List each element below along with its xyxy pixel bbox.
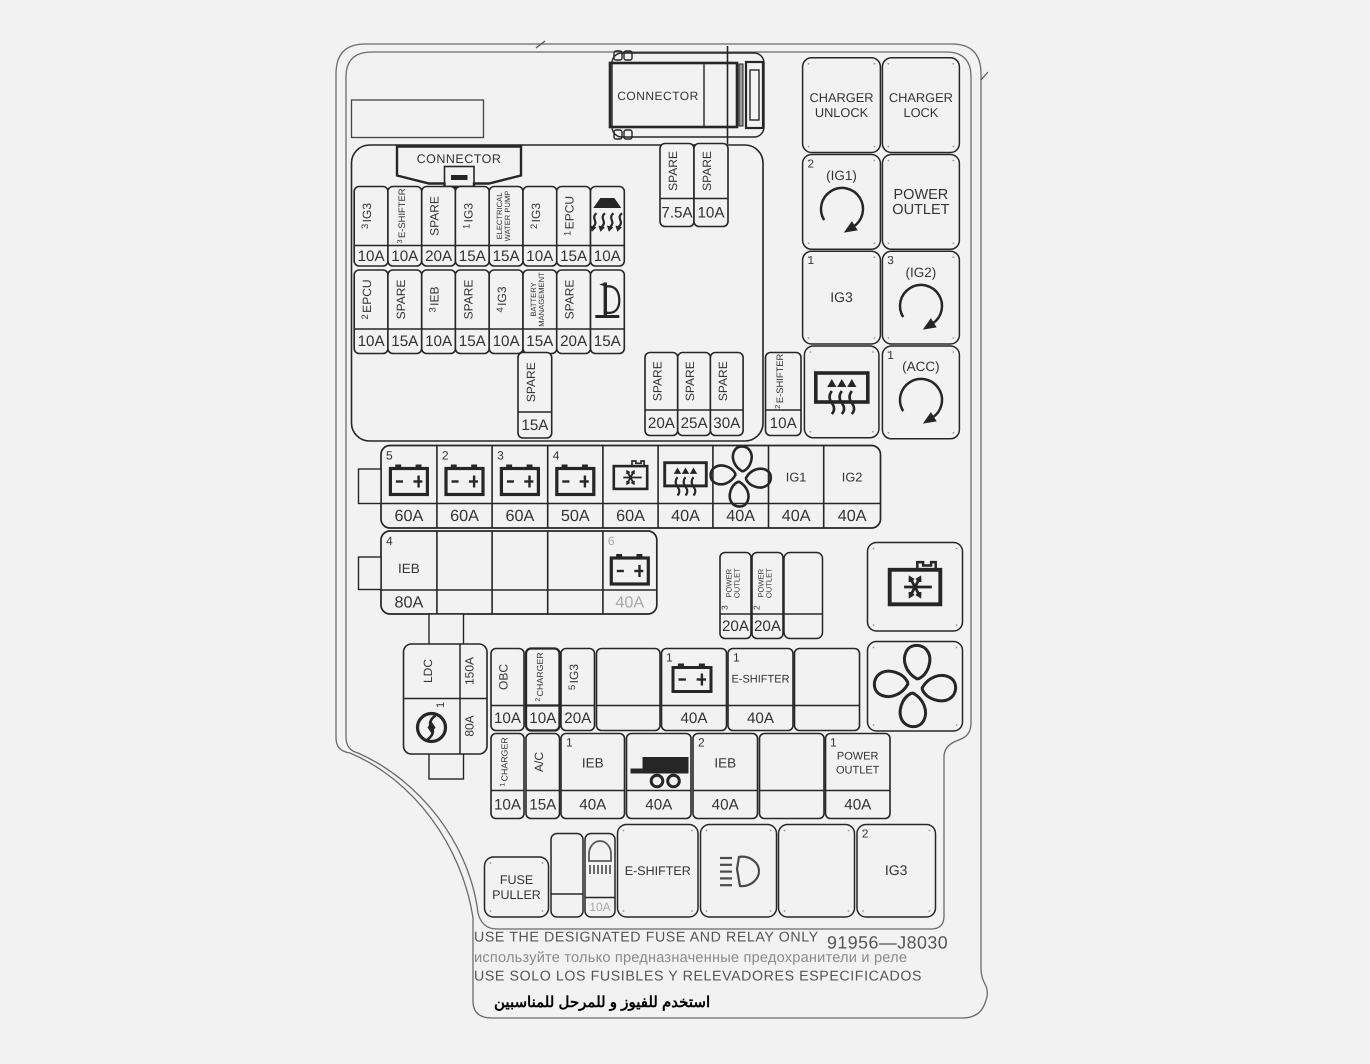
svg-text:80A: 80A [463,715,477,736]
svg-text:(ACC): (ACC) [902,359,940,374]
svg-text:15A: 15A [560,248,588,265]
svg-text:20A: 20A [754,618,782,635]
svg-text:40A: 40A [712,797,740,814]
svg-text:IG2: IG2 [842,470,863,485]
svg-text:40A: 40A [671,507,700,525]
svg-text:SPARE: SPARE [650,361,664,401]
svg-text:USE SOLO LOS FUSIBLES Y RELEVA: USE SOLO LOS FUSIBLES Y RELEVADORES ESPE… [474,969,922,985]
svg-text:IEB: IEB [398,561,420,576]
svg-text:SPARE: SPARE [428,196,442,236]
svg-text:15A: 15A [521,417,549,434]
svg-text:2CHARGER: 2CHARGER [535,652,545,701]
svg-text:15A: 15A [526,333,554,350]
svg-text:40A: 40A [782,507,811,525]
svg-text:10A: 10A [391,248,419,265]
svg-text:10A: 10A [697,205,725,222]
svg-text:WATER PUMP: WATER PUMP [503,191,512,242]
svg-text:SPARE: SPARE [700,151,714,191]
svg-text:SPARE: SPARE [716,361,730,401]
svg-text:3: 3 [497,449,504,463]
svg-text:IEB: IEB [582,756,604,771]
svg-text:2: 2 [442,449,449,463]
svg-text:10A: 10A [358,333,386,350]
svg-text:40A: 40A [726,507,755,525]
svg-text:15A: 15A [459,333,487,350]
svg-text:SPARE: SPARE [461,280,475,320]
svg-text:2: 2 [862,829,868,841]
svg-text:10A: 10A [493,333,521,350]
svg-text:40A: 40A [615,594,644,612]
svg-text:1EPCU: 1EPCU [562,196,577,236]
svg-text:10A: 10A [425,333,453,350]
svg-text:SPARE: SPARE [394,280,408,320]
svg-text:استخدم للفيوز و للمرحل للمناسب: استخدم للفيوز و للمرحل للمناسبين [494,994,710,1011]
svg-text:30A: 30A [713,415,741,432]
svg-text:20A: 20A [722,618,750,635]
svg-text:1CHARGER: 1CHARGER [500,737,510,786]
svg-text:используйте только предназначе: используйте только предназначенные предо… [474,950,907,966]
svg-text:LOCK: LOCK [903,105,938,120]
svg-text:2: 2 [698,736,705,750]
svg-text:20A: 20A [564,710,592,727]
svg-text:OUTLET: OUTLET [892,202,949,218]
svg-text:10A: 10A [494,797,522,814]
svg-text:3E-SHIFTER: 3E-SHIFTER [395,188,407,243]
svg-text:10A: 10A [526,248,554,265]
svg-text:CONNECTOR: CONNECTOR [617,89,699,103]
svg-text:60A: 60A [450,507,479,525]
svg-text:UNLOCK: UNLOCK [815,105,869,120]
svg-text:15A: 15A [493,248,521,265]
svg-text:40A: 40A [844,797,872,814]
svg-text:1: 1 [887,350,893,362]
svg-text:10A: 10A [594,248,622,265]
svg-text:60A: 60A [394,507,423,525]
svg-text:SPARE: SPARE [563,280,577,320]
svg-text:15A: 15A [594,333,622,350]
svg-text:FUSE: FUSE [500,873,533,887]
svg-text:LDC: LDC [421,659,435,683]
svg-text:USE THE DESIGNATED FUSE AND RE: USE THE DESIGNATED FUSE AND RELAY ONLY [474,930,819,946]
svg-text:1: 1 [566,736,573,750]
svg-text:(IG2): (IG2) [906,265,937,280]
svg-text:40A: 40A [838,507,867,525]
svg-text:3: 3 [720,605,730,610]
svg-text:IG3: IG3 [885,862,908,878]
svg-text:150A: 150A [463,657,477,685]
svg-text:4: 4 [553,449,560,463]
svg-text:OUTLET: OUTLET [836,765,880,777]
svg-text:5: 5 [386,449,393,463]
svg-text:6: 6 [608,534,615,548]
svg-text:40A: 40A [645,797,673,814]
svg-text:20A: 20A [560,333,588,350]
svg-text:1: 1 [808,255,814,267]
svg-text:CHARGER: CHARGER [889,90,953,105]
svg-text:SPARE: SPARE [683,361,697,401]
svg-text:OUTLET: OUTLET [733,568,742,598]
svg-text:OBC: OBC [497,664,511,690]
svg-text:15A: 15A [459,248,487,265]
svg-text:15A: 15A [391,333,419,350]
svg-text:SPARE: SPARE [524,362,538,402]
svg-text:E-SHIFTER: E-SHIFTER [625,864,691,878]
svg-text:40A: 40A [747,710,775,727]
svg-text:40A: 40A [579,797,607,814]
svg-text:IG1: IG1 [786,470,807,485]
svg-text:20A: 20A [425,248,453,265]
svg-text:OUTLET: OUTLET [765,568,774,598]
svg-text:25A: 25A [681,415,709,432]
svg-text:POWER: POWER [837,751,879,763]
svg-text:10A: 10A [494,710,522,727]
svg-text:MANAGEMENT: MANAGEMENT [537,272,546,327]
svg-text:1: 1 [830,736,837,750]
svg-text:CONNECTOR: CONNECTOR [417,152,502,166]
svg-text:IG3: IG3 [830,289,853,305]
svg-text:60A: 60A [505,507,534,525]
svg-text:4: 4 [386,534,393,548]
svg-text:10A: 10A [770,415,798,432]
svg-text:CHARGER: CHARGER [810,90,874,105]
svg-text:(IG1): (IG1) [826,168,857,183]
svg-text:40A: 40A [680,710,708,727]
svg-text:7.5A: 7.5A [661,205,693,222]
svg-text:50A: 50A [561,507,590,525]
svg-text:20A: 20A [648,415,676,432]
svg-text:10A: 10A [529,710,557,727]
svg-text:SPARE: SPARE [666,151,680,191]
svg-text:2EPCU: 2EPCU [359,279,374,319]
svg-text:15A: 15A [529,797,557,814]
svg-text:A/C: A/C [532,752,546,772]
svg-text:1: 1 [435,702,447,708]
svg-text:1: 1 [733,651,740,665]
svg-text:60A: 60A [616,507,645,525]
svg-text:1: 1 [666,651,673,665]
svg-text:PULLER: PULLER [492,888,541,902]
svg-text:E-SHIFTER: E-SHIFTER [731,674,789,686]
svg-text:2: 2 [808,159,814,171]
svg-text:80A: 80A [394,594,423,612]
svg-text:3: 3 [887,255,893,267]
svg-text:10A: 10A [358,248,386,265]
svg-text:2: 2 [752,605,762,610]
svg-text:IEB: IEB [714,756,736,771]
svg-text:2E-SHIFTER: 2E-SHIFTER [773,353,785,408]
svg-text:POWER: POWER [894,187,949,203]
svg-text:10A: 10A [589,900,610,914]
